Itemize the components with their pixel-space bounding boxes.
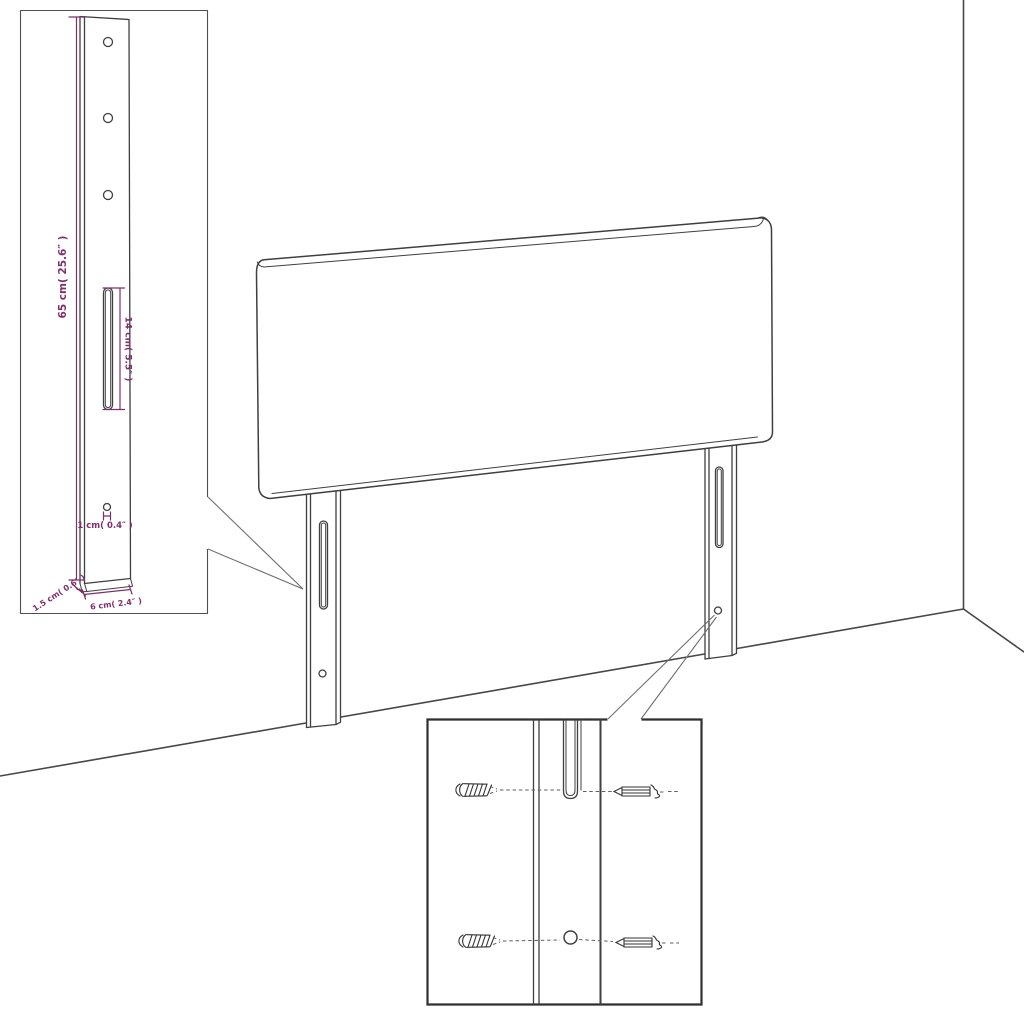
machine-screw-icon — [616, 936, 668, 949]
floor-line-right — [964, 609, 1024, 652]
dimension-leg-depth-label: 1.5 cm( 0.6″ ) — [31, 573, 87, 614]
headboard-outline — [257, 218, 773, 499]
machine-screw-icon — [614, 785, 666, 798]
dimension-slot-length-label: 14 cm( 5.5″ ) — [123, 317, 133, 382]
right-leg-hole — [715, 607, 722, 614]
left-leg-slot — [320, 521, 328, 609]
leg-detail-inset: 65 cm( 25.6″ ) 14 cm( 5.5″ ) 1 cm( 0.4″ … — [21, 11, 208, 614]
bracket-hole-1 — [104, 38, 113, 47]
dimension-leg-width-label: 6 cm( 2.4″ ) — [90, 596, 143, 611]
right-leg-slot — [716, 467, 724, 548]
bracket-small-hole — [104, 504, 111, 511]
dimension-slot-length: 14 cm( 5.5″ ) — [103, 288, 133, 410]
headboard-panel — [257, 217, 773, 498]
mounting-detail-hole — [564, 931, 577, 944]
dimension-hole-diameter: 1 cm( 0.4″ ) — [77, 512, 132, 531]
wood-screw-icon — [459, 935, 500, 948]
headboard-assembly-diagram: 65 cm( 25.6″ ) 14 cm( 5.5″ ) 1 cm( 0.4″ … — [0, 0, 1024, 1024]
lower-right-leader-line — [579, 940, 613, 942]
leg-detail-callout-lines — [208, 497, 303, 589]
dimension-leg-depth: 1.5 cm( 0.6″ ) — [31, 573, 87, 614]
mounting-detail-callout-lines — [608, 615, 717, 719]
mounting-detail-inset-border — [428, 720, 702, 1005]
leg-detail-bracket — [80, 17, 133, 592]
bracket-hole-3 — [104, 191, 113, 200]
mounting-detail-leg-strip — [534, 720, 601, 1004]
lower-left-leader-line — [503, 940, 560, 941]
floor-line-left — [0, 609, 964, 776]
bracket-hole-2 — [104, 114, 113, 123]
left-leg-hole — [319, 670, 326, 677]
dimension-hole-diameter-label: 1 cm( 0.4″ ) — [77, 521, 132, 531]
dimension-leg-height-label: 65 cm( 25.6″ ) — [57, 236, 69, 319]
diagram-stage: 65 cm( 25.6″ ) 14 cm( 5.5″ ) 1 cm( 0.4″ … — [0, 0, 1024, 1024]
mounting-detail-lower-row — [459, 935, 679, 950]
left-leg — [307, 490, 341, 727]
mounting-detail-inset — [428, 720, 702, 1005]
wood-screw-icon — [456, 784, 497, 797]
mounting-detail-upper-row — [456, 784, 678, 799]
